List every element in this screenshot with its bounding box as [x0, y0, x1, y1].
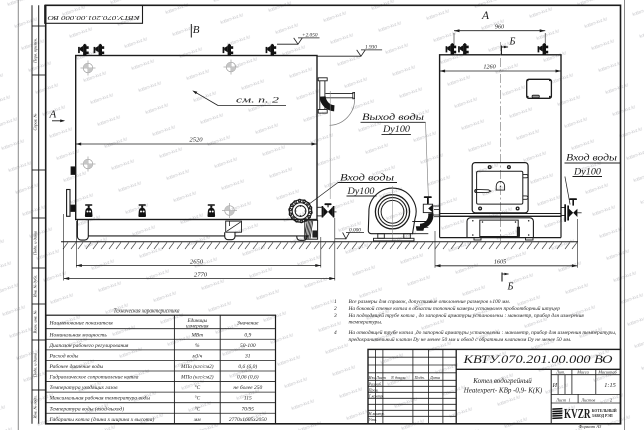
svg-text:Пров.: Пров. [368, 387, 379, 392]
svg-text:kotlam-kvz.kz: kotlam-kvz.kz [91, 258, 116, 271]
svg-text:kotlam-kvz.kz: kotlam-kvz.kz [413, 130, 438, 143]
svg-text:kotlam-kvz.kz: kotlam-kvz.kz [325, 342, 350, 355]
svg-text:Лит.: Лит. [555, 370, 565, 375]
svg-text:kotlam-kvz.kz: kotlam-kvz.kz [220, 12, 245, 25]
svg-text:ЗАВОД РЭП: ЗАВОД РЭП [592, 414, 613, 418]
svg-text:Гидравлическое сопротивление к: Гидравлическое сопротивление котла [49, 374, 139, 381]
svg-text:МПа (кгс/см2): МПа (кгс/см2) [180, 363, 214, 370]
svg-text:+2.050: +2.050 [302, 33, 318, 39]
svg-text:1.930: 1.930 [365, 45, 377, 51]
svg-text:kotlam-kvz.kz: kotlam-kvz.kz [153, 290, 178, 303]
svg-text:kotlam-kvz.kz: kotlam-kvz.kz [359, 286, 384, 299]
svg-text:Лист: Лист [555, 397, 566, 402]
svg-text:kotlam-kvz.kz: kotlam-kvz.kz [613, 270, 638, 283]
svg-text:kotlam-kvz.kz: kotlam-kvz.kz [620, 292, 644, 305]
svg-text:°С: °С [194, 384, 200, 391]
svg-text:На отводящей трубе котла ,до з: На отводящей трубе котла ,до запорной ар… [348, 329, 617, 336]
svg-text:kotlam-kvz.kz: kotlam-kvz.kz [303, 110, 328, 123]
svg-text:kotlam-kvz.kz: kotlam-kvz.kz [0, 426, 13, 430]
svg-text:kotlam-kvz.kz: kotlam-kvz.kz [385, 42, 410, 55]
svg-text:kotlam-kvz.kz: kotlam-kvz.kz [166, 168, 191, 181]
svg-text:kotlam-kvz.kz: kotlam-kvz.kz [276, 188, 301, 201]
svg-text:kotlam-kvz.kz: kotlam-kvz.kz [634, 336, 644, 349]
svg-text:kotlam-kvz.kz: kotlam-kvz.kz [421, 318, 446, 331]
svg-text:kotlam-kvz.kz: kotlam-kvz.kz [345, 242, 370, 255]
svg-text:kotlam-kvz.kz: kotlam-kvz.kz [352, 264, 377, 277]
svg-text:kotlam-kvz.kz: kotlam-kvz.kz [159, 146, 184, 159]
svg-text:Инв. № подл.: Инв. № подл. [33, 395, 38, 419]
svg-text:kotlam-kvz.kz: kotlam-kvz.kz [173, 190, 198, 203]
svg-text:kotlam-kvz.kz: kotlam-kvz.kz [316, 0, 341, 1]
svg-text:Вход воды: Вход воды [340, 172, 394, 182]
svg-text:А: А [49, 109, 57, 121]
svg-text:kotlam-kvz.kz: kotlam-kvz.kz [241, 78, 266, 91]
svg-text:kotlam-kvz.kz: kotlam-kvz.kz [131, 58, 156, 71]
svg-text:На подводящей трубе котла , д: На подводящей трубе котла , до запорной … [348, 312, 585, 319]
svg-text:kotlam-kvz.kz: kotlam-kvz.kz [269, 166, 294, 179]
svg-text:kotlam-kvz.kz: kotlam-kvz.kz [640, 192, 644, 205]
svg-text:kotlam-kvz.kz: kotlam-kvz.kz [394, 396, 419, 409]
svg-text:kotlam-kvz.kz: kotlam-kvz.kz [14, 16, 39, 29]
svg-text:А: А [481, 10, 490, 22]
svg-text:kotlam-kvz.kz: kotlam-kvz.kz [242, 244, 267, 257]
svg-text:не более 250: не более 250 [233, 384, 262, 391]
svg-text:50-100: 50-100 [240, 343, 256, 349]
svg-text:kotlam-kvz.kz: kotlam-kvz.kz [124, 36, 149, 49]
svg-text:kotlam-kvz.kz: kotlam-kvz.kz [70, 192, 95, 205]
svg-text:kotlam-kvz.kz: kotlam-kvz.kz [496, 228, 521, 241]
svg-text:kotlam-kvz.kz: kotlam-kvz.kz [2, 304, 27, 317]
svg-text:kotlam-kvz.kz: kotlam-kvz.kz [289, 66, 314, 79]
svg-text:kotlam-kvz.kz: kotlam-kvz.kz [201, 278, 226, 291]
svg-text:Н.контр.: Н.контр. [368, 411, 385, 416]
svg-text:kotlam-kvz.kz: kotlam-kvz.kz [626, 148, 644, 161]
svg-text:kotlam-kvz.kz: kotlam-kvz.kz [145, 102, 170, 115]
svg-text:kotlam-kvz.kz: kotlam-kvz.kz [323, 10, 348, 23]
svg-text:МПа (кгс/см2): МПа (кгс/см2) [180, 374, 214, 381]
svg-text:Диапазон рабочего регулировани: Диапазон рабочего регулирования [49, 342, 129, 349]
svg-text:На боковой стенке котла в обла: На боковой стенке котла в области топочн… [348, 305, 561, 312]
svg-text:kotlam-kvz.kz: kotlam-kvz.kz [0, 260, 12, 273]
svg-text:kotlam-kvz.kz: kotlam-kvz.kz [571, 138, 596, 151]
svg-text:Б: Б [507, 282, 514, 293]
svg-text:kotlam-kvz.kz: kotlam-kvz.kz [0, 404, 6, 417]
svg-text:Heatexpert- КВр -0,9- К(К): Heatexpert- КВр -0,9- К(К) [463, 386, 543, 394]
svg-text:kotlam-kvz.kz: kotlam-kvz.kz [83, 70, 108, 83]
svg-text:Котел водогрейный: Котел водогрейный [472, 377, 532, 385]
svg-text:В: В [193, 24, 200, 36]
svg-text:KVZR: KVZR [564, 406, 591, 421]
svg-text:Т.контр.: Т.контр. [369, 393, 384, 398]
svg-text:kotlam-kvz.kz: kotlam-kvz.kz [152, 124, 177, 137]
svg-text:kotlam-kvz.kz: kotlam-kvz.kz [104, 136, 129, 149]
svg-text:Масштаб: Масштаб [597, 370, 617, 375]
svg-text:Подп. и дата: Подп. и дата [33, 353, 38, 378]
svg-text:Инв. № дубл.: Инв. № дубл. [33, 275, 38, 299]
svg-text:kotlam-kvz.kz: kotlam-kvz.kz [49, 126, 74, 139]
svg-text:МВт: МВт [191, 332, 204, 338]
svg-text:КВТУ.070.201.00.000 ВО: КВТУ.070.201.00.000 ВО [47, 14, 141, 21]
svg-text:Подп.: Подп. [414, 375, 425, 380]
svg-text:kotlam-kvz.kz: kotlam-kvz.kz [536, 28, 561, 41]
svg-text:КВТУ.070.201.00.000 ВО: КВТУ.070.201.00.000 ВО [462, 354, 613, 366]
svg-text:kotlam-kvz.kz: kotlam-kvz.kz [9, 326, 34, 339]
svg-text:2520: 2520 [189, 137, 203, 144]
svg-text:kotlam-kvz.kz: kotlam-kvz.kz [0, 282, 19, 295]
svg-text:kotlam-kvz.kz: kotlam-kvz.kz [207, 134, 232, 147]
svg-text:kotlam-kvz.kz: kotlam-kvz.kz [256, 288, 281, 301]
svg-text:kotlam-kvz.kz: kotlam-kvz.kz [0, 72, 4, 85]
svg-text:kotlam-kvz.kz: kotlam-kvz.kz [132, 224, 157, 237]
svg-text:kotlam-kvz.kz: kotlam-kvz.kz [330, 32, 355, 45]
svg-text:kotlam-kvz.kz: kotlam-kvz.kz [447, 74, 472, 87]
svg-text:kotlam-kvz.kz: kotlam-kvz.kz [0, 238, 5, 251]
svg-text:kotlam-kvz.kz: kotlam-kvz.kz [139, 246, 164, 259]
svg-text:kotlam-kvz.kz: kotlam-kvz.kz [497, 394, 522, 407]
svg-text:kotlam-kvz.kz: kotlam-kvz.kz [551, 238, 576, 251]
svg-text:Выход воды: Выход воды [362, 112, 424, 122]
svg-text:kotlam-kvz.kz: kotlam-kvz.kz [378, 20, 403, 33]
svg-text:2770х1605х2050: 2770х1605х2050 [229, 417, 267, 423]
svg-text:kotlam-kvz.kz: kotlam-kvz.kz [455, 262, 480, 275]
svg-text:kotlam-kvz.kz: kotlam-kvz.kz [399, 86, 424, 99]
svg-text:kotlam-kvz.kz: kotlam-kvz.kz [584, 16, 609, 29]
svg-text:kotlam-kvz.kz: kotlam-kvz.kz [275, 22, 300, 35]
svg-text:kotlam-kvz.kz: kotlam-kvz.kz [605, 82, 630, 95]
svg-text:kotlam-kvz.kz: kotlam-kvz.kz [441, 218, 466, 231]
svg-text:предохранительный клапан Dy н: предохранительный клапан Dy не менее 50 … [349, 336, 572, 343]
svg-text:kotlam-kvz.kz: kotlam-kvz.kz [392, 64, 417, 77]
svg-text:kotlam-kvz.kz: kotlam-kvz.kz [632, 4, 644, 17]
svg-text:kotlam-kvz.kz: kotlam-kvz.kz [138, 80, 163, 93]
svg-text:kotlam-kvz.kz: kotlam-kvz.kz [509, 106, 534, 119]
svg-text:kotlam-kvz.kz: kotlam-kvz.kz [304, 276, 329, 289]
svg-text:kotlam-kvz.kz: kotlam-kvz.kz [537, 194, 562, 207]
svg-text:kotlam-kvz.kz: kotlam-kvz.kz [475, 162, 500, 175]
svg-text:kotlam-kvz.kz: kotlam-kvz.kz [36, 248, 61, 261]
svg-text:kotlam-kvz.kz: kotlam-kvz.kz [619, 126, 644, 139]
svg-text:kotlam-kvz.kz: kotlam-kvz.kz [639, 26, 644, 39]
svg-text:kotlam-kvz.kz: kotlam-kvz.kz [523, 150, 548, 163]
svg-text:Перв. примен.: Перв. примен. [33, 38, 38, 64]
svg-text:kotlam-kvz.kz: kotlam-kvz.kz [284, 376, 309, 389]
svg-text:kotlam-kvz.kz: kotlam-kvz.kz [213, 0, 238, 3]
svg-text:kotlam-kvz.kz: kotlam-kvz.kz [420, 152, 445, 165]
svg-text:kotlam-kvz.kz: kotlam-kvz.kz [503, 250, 528, 263]
svg-text:0.000: 0.000 [349, 227, 361, 233]
svg-text:31: 31 [244, 353, 251, 359]
svg-text:Техническая характеристика: Техническая характеристика [114, 308, 180, 315]
svg-text:kotlam-kvz.kz: kotlam-kvz.kz [214, 156, 239, 169]
svg-text:kotlam-kvz.kz: kotlam-kvz.kz [504, 416, 529, 429]
svg-text:kotlam-kvz.kz: kotlam-kvz.kz [92, 424, 117, 430]
svg-text:kotlam-kvz.kz: kotlam-kvz.kz [98, 280, 123, 293]
svg-text:Dy100: Dy100 [382, 124, 411, 134]
svg-text:КОТЕЛЬНЫЙ: КОТЕЛЬНЫЙ [592, 408, 617, 413]
svg-text:kotlam-kvz.kz: kotlam-kvz.kz [208, 300, 233, 313]
svg-text:kotlam-kvz.kz: kotlam-kvz.kz [468, 140, 493, 153]
svg-text:kotlam-kvz.kz: kotlam-kvz.kz [502, 84, 527, 97]
svg-text:kotlam-kvz.kz: kotlam-kvz.kz [0, 94, 11, 107]
svg-text:Номинальная мощность: Номинальная мощность [49, 332, 108, 338]
svg-text:kotlam-kvz.kz: kotlam-kvz.kz [461, 118, 486, 131]
svg-text:kotlam-kvz.kz: kotlam-kvz.kz [612, 104, 637, 117]
svg-text:kotlam-kvz.kz: kotlam-kvz.kz [167, 334, 192, 347]
svg-text:kotlam-kvz.kz: kotlam-kvz.kz [380, 352, 405, 365]
svg-text:Наименование показателя: Наименование показателя [49, 321, 114, 327]
svg-text:0,6 (6,0): 0,6 (6,0) [238, 363, 257, 370]
svg-text:kotlam-kvz.kz: kotlam-kvz.kz [434, 196, 459, 209]
svg-text:kotlam-kvz.kz: kotlam-kvz.kz [565, 282, 590, 295]
svg-text:°С: °С [194, 405, 200, 412]
svg-text:kotlam-kvz.kz: kotlam-kvz.kz [90, 92, 115, 105]
svg-text:kotlam-kvz.kz: kotlam-kvz.kz [474, 0, 499, 9]
svg-text:4: 4 [334, 330, 337, 336]
svg-text:kotlam-kvz.kz: kotlam-kvz.kz [592, 204, 617, 217]
svg-text:И: И [552, 382, 558, 389]
svg-text:Dy100: Dy100 [346, 186, 375, 196]
svg-text:1605: 1605 [494, 259, 506, 266]
svg-text:kotlam-kvz.kz: kotlam-kvz.kz [180, 212, 205, 225]
svg-text:115: 115 [244, 396, 252, 402]
svg-text:kotlam-kvz.kz: kotlam-kvz.kz [310, 132, 335, 145]
svg-text:kotlam-kvz.kz: kotlam-kvz.kz [165, 2, 190, 15]
svg-text:kotlam-kvz.kz: kotlam-kvz.kz [558, 260, 583, 273]
svg-text:kotlam-kvz.kz: kotlam-kvz.kz [529, 6, 554, 19]
svg-text:0,06 (0,6): 0,06 (0,6) [237, 374, 259, 381]
svg-text:Все размеры для справок, допус: Все размеры для справок, допустимые откл… [349, 298, 511, 305]
svg-text:kotlam-kvz.kz: kotlam-kvz.kz [332, 364, 357, 377]
svg-text:kotlam-kvz.kz: kotlam-kvz.kz [400, 252, 425, 265]
svg-text:kotlam-kvz.kz: kotlam-kvz.kz [317, 154, 342, 167]
svg-text:Габариты котла (длина х ширина: Габариты котла (длина х ширина х высота) [49, 416, 155, 423]
svg-text:°С: °С [194, 395, 200, 402]
svg-text:kotlam-kvz.kz: kotlam-kvz.kz [1, 138, 26, 151]
svg-text:kotlam-kvz.kz: kotlam-kvz.kz [118, 180, 143, 193]
svg-text:см. п. 2: см. п. 2 [236, 95, 280, 105]
svg-text:kotlam-kvz.kz: kotlam-kvz.kz [255, 122, 280, 135]
svg-text:1: 1 [334, 299, 337, 305]
svg-text:Температура уходящих газов: Температура уходящих газов [50, 384, 119, 391]
svg-text:kotlam-kvz.kz: kotlam-kvz.kz [598, 60, 623, 73]
svg-text:2650: 2650 [190, 258, 204, 265]
svg-text:kotlam-kvz.kz: kotlam-kvz.kz [146, 268, 171, 281]
svg-text:kotlam-kvz.kz: kotlam-kvz.kz [344, 76, 369, 89]
svg-text:kotlam-kvz.kz: kotlam-kvz.kz [550, 72, 575, 85]
svg-text:Листов: Листов [580, 397, 595, 402]
svg-text:Вход воды: Вход воды [566, 153, 617, 163]
svg-text:kotlam-kvz.kz: kotlam-kvz.kz [0, 116, 18, 129]
svg-text:Изм: Изм [368, 375, 377, 380]
svg-text:Б: Б [509, 37, 516, 48]
svg-text:1: 1 [569, 397, 571, 402]
svg-text:kotlam-kvz.kz: kotlam-kvz.kz [365, 142, 390, 155]
svg-text:kotlam-kvz.kz: kotlam-kvz.kz [442, 384, 467, 397]
svg-text:Рабочее давление воды: Рабочее давление воды [49, 363, 104, 370]
svg-text:kotlam-kvz.kz: kotlam-kvz.kz [449, 406, 474, 419]
svg-text:kotlam-kvz.kz: kotlam-kvz.kz [530, 172, 555, 185]
svg-text:kotlam-kvz.kz: kotlam-kvz.kz [591, 38, 616, 51]
svg-text:Разраб.: Разраб. [368, 381, 382, 386]
svg-text:kotlam-kvz.kz: kotlam-kvz.kz [111, 158, 136, 171]
svg-text:Лист: Лист [375, 375, 386, 380]
svg-text:kotlam-kvz.kz: kotlam-kvz.kz [69, 26, 94, 39]
svg-text:kotlam-kvz.kz: kotlam-kvz.kz [56, 148, 81, 161]
svg-text:kotlam-kvz.kz: kotlam-kvz.kz [462, 284, 487, 297]
svg-text:kotlam-kvz.kz: kotlam-kvz.kz [200, 112, 225, 125]
svg-text:3: 3 [333, 313, 337, 319]
svg-text:kotlam-kvz.kz: kotlam-kvz.kz [346, 408, 371, 421]
svg-text:kotlam-kvz.kz: kotlam-kvz.kz [564, 116, 589, 129]
svg-text:температуры.: температуры. [349, 319, 383, 325]
svg-text:kotlam-kvz.kz: kotlam-kvz.kz [337, 54, 362, 67]
svg-text:kotlam-kvz.kz: kotlam-kvz.kz [311, 298, 336, 311]
svg-text:kotlam-kvz.kz: kotlam-kvz.kz [516, 128, 541, 141]
svg-text:kotlam-kvz.kz: kotlam-kvz.kz [641, 358, 644, 371]
svg-text:kotlam-kvz.kz: kotlam-kvz.kz [50, 292, 75, 305]
svg-text:kotlam-kvz.kz: kotlam-kvz.kz [97, 114, 122, 127]
svg-text:kotlam-kvz.kz: kotlam-kvz.kz [627, 314, 644, 327]
svg-text:м3/ч: м3/ч [191, 353, 203, 359]
svg-text:Формат А3: Формат А3 [579, 424, 603, 429]
svg-text:%: % [195, 343, 200, 349]
svg-text:kotlam-kvz.kz: kotlam-kvz.kz [633, 170, 644, 183]
svg-text:70/95: 70/95 [242, 406, 255, 412]
svg-text:Значение: Значение [237, 321, 259, 327]
svg-text:Справ. №: Справ. № [33, 113, 38, 130]
svg-text:2: 2 [334, 306, 337, 312]
svg-text:Взам. инв. №: Взам. инв. № [33, 310, 38, 333]
svg-text:kotlam-kvz.kz: kotlam-kvz.kz [8, 160, 33, 173]
svg-text:измерения: измерения [186, 324, 209, 330]
svg-text:Дата: Дата [429, 375, 440, 380]
svg-text:Подп. и дата: Подп. и дата [33, 231, 38, 256]
svg-text:kotlam-kvz.kz: kotlam-kvz.kz [262, 144, 287, 157]
svg-text:kotlam-kvz.kz: kotlam-kvz.kz [7, 0, 32, 7]
svg-text:kotlam-kvz.kz: kotlam-kvz.kz [339, 386, 364, 399]
svg-text:Расход воды: Расход воды [49, 352, 79, 359]
svg-text:kotlam-kvz.kz: kotlam-kvz.kz [270, 332, 295, 345]
svg-text:kotlam-kvz.kz: kotlam-kvz.kz [517, 294, 542, 307]
svg-text:kotlam-kvz.kz: kotlam-kvz.kz [495, 62, 520, 75]
svg-text:kotlam-kvz.kz: kotlam-kvz.kz [454, 96, 479, 109]
svg-text:1:15: 1:15 [604, 382, 616, 389]
svg-text:kotlam-kvz.kz: kotlam-kvz.kz [318, 320, 343, 333]
svg-text:Утв.: Утв. [369, 417, 378, 422]
svg-text:2770: 2770 [194, 271, 208, 278]
svg-text:kotlam-kvz.kz: kotlam-kvz.kz [186, 68, 211, 81]
svg-text:Масса: Масса [576, 370, 589, 375]
svg-text:kotlam-kvz.kz: kotlam-kvz.kz [268, 0, 293, 13]
svg-text:kotlam-kvz.kz: kotlam-kvz.kz [110, 0, 135, 5]
svg-text:kotlam-kvz.kz: kotlam-kvz.kz [249, 266, 274, 279]
svg-text:kotlam-kvz.kz: kotlam-kvz.kz [112, 324, 137, 337]
svg-text:kotlam-kvz.kz: kotlam-kvz.kz [179, 46, 204, 59]
svg-text:kotlam-kvz.kz: kotlam-kvz.kz [28, 60, 53, 73]
svg-text:Максимальная рабочая температу: Максимальная рабочая температура воды [49, 395, 151, 402]
svg-text:kotlam-kvz.kz: kotlam-kvz.kz [407, 274, 432, 287]
svg-text:Dy100: Dy100 [573, 166, 602, 176]
svg-text:kotlam-kvz.kz: kotlam-kvz.kz [585, 182, 610, 195]
svg-text:мм: мм [193, 417, 201, 423]
svg-text:Температура воды (вход/выход): Температура воды (вход/выход) [50, 405, 125, 412]
svg-text:kotlam-kvz.kz: kotlam-kvz.kz [22, 204, 47, 217]
svg-text:kotlam-kvz.kz: kotlam-kvz.kz [277, 354, 302, 367]
svg-text:kotlam-kvz.kz: kotlam-kvz.kz [606, 248, 631, 261]
svg-text:1260: 1260 [483, 63, 496, 70]
svg-text:N докум.: N докум. [390, 375, 406, 380]
svg-text:kotlam-kvz.kz: kotlam-kvz.kz [291, 398, 316, 411]
svg-text:kotlam-kvz.kz: kotlam-kvz.kz [298, 420, 323, 430]
svg-text:kotlam-kvz.kz: kotlam-kvz.kz [221, 178, 246, 191]
svg-text:kotlam-kvz.kz: kotlam-kvz.kz [426, 8, 451, 21]
svg-text:0,9: 0,9 [244, 332, 251, 338]
svg-text:960: 960 [495, 23, 505, 30]
